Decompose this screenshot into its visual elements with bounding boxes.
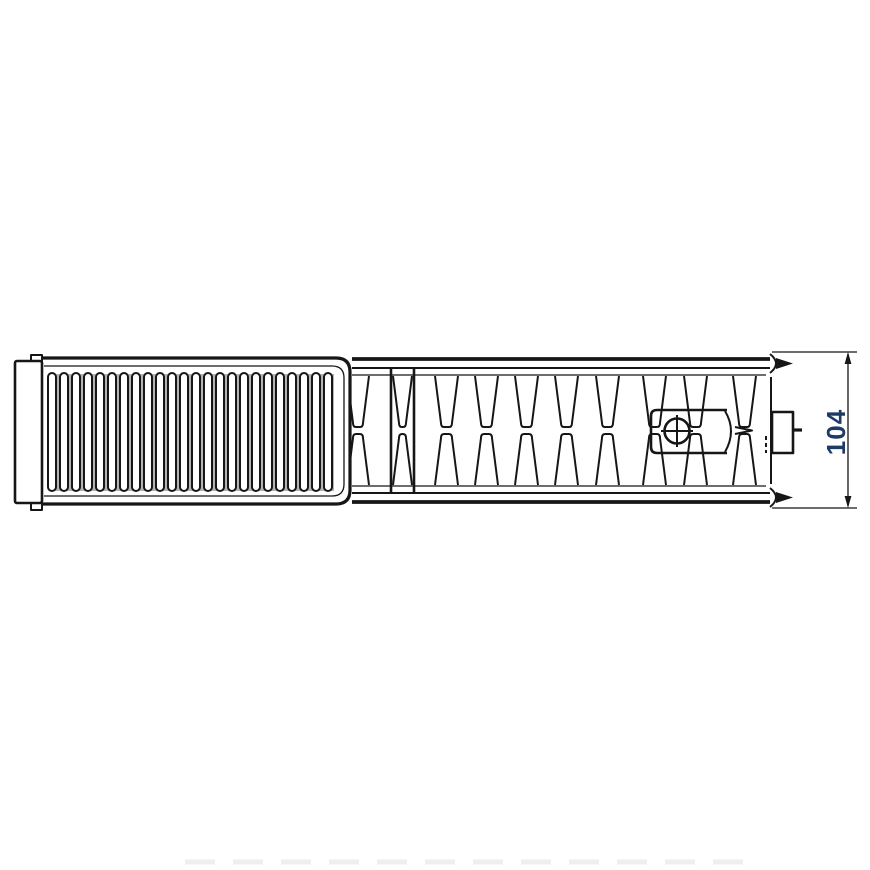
end-cap xyxy=(15,361,42,503)
convector-channel xyxy=(596,376,619,427)
convector-channel xyxy=(515,434,538,485)
grille-fin xyxy=(96,373,104,491)
convector-channel xyxy=(435,434,458,485)
grille-fin xyxy=(216,373,224,491)
grille-fin xyxy=(324,373,332,491)
convector-channels xyxy=(347,376,756,485)
convector-channel xyxy=(393,376,412,427)
grille-fin xyxy=(84,373,92,491)
convector-channel xyxy=(643,434,666,485)
grille-fin xyxy=(204,373,212,491)
arrow-up-icon xyxy=(845,352,852,364)
convector-channel xyxy=(684,434,707,485)
convector-channel xyxy=(393,434,412,485)
grille-fin xyxy=(120,373,128,491)
dimension-label: 104 xyxy=(821,409,851,455)
valve-cross-icon xyxy=(661,415,693,447)
grille-fin xyxy=(156,373,164,491)
grille-fin xyxy=(72,373,80,491)
grille-fin xyxy=(264,373,272,491)
connection-block xyxy=(772,412,793,453)
valve-spindle-tip xyxy=(735,427,752,434)
grille-fin xyxy=(276,373,284,491)
convector-channel xyxy=(733,434,756,485)
arrow-down-icon xyxy=(845,496,852,508)
grille-fin xyxy=(108,373,116,491)
rear-top-end-tip xyxy=(776,358,793,369)
convector-channel xyxy=(515,376,538,427)
rear-bottom-end-tip xyxy=(776,492,793,503)
grille-fin xyxy=(300,373,308,491)
dimension-annotation: 104 xyxy=(772,352,857,508)
convector-channel xyxy=(733,376,756,427)
grille-fin xyxy=(228,373,236,491)
convector-channel xyxy=(555,376,578,427)
convector-channel xyxy=(475,434,498,485)
grille-fin xyxy=(168,373,176,491)
convector-channel xyxy=(555,434,578,485)
rear-top-end-arc xyxy=(770,354,776,373)
valve-end-arc xyxy=(725,411,731,452)
front-panel-grille xyxy=(15,355,350,510)
diagram-canvas: 104 xyxy=(0,0,870,870)
grille-fin xyxy=(48,373,56,491)
rear-bottom-end-arc xyxy=(770,488,776,507)
grille-fin xyxy=(240,373,248,491)
convector-channel xyxy=(684,376,707,427)
convector-channel xyxy=(596,434,619,485)
grille-fin xyxy=(132,373,140,491)
grille-fin xyxy=(252,373,260,491)
rear-panel xyxy=(347,354,802,507)
grille-fin xyxy=(312,373,320,491)
grille-fin xyxy=(144,373,152,491)
radiator-technical-drawing: 104 xyxy=(0,0,870,870)
convector-channel xyxy=(435,376,458,427)
grille-fin xyxy=(288,373,296,491)
grille-fin xyxy=(180,373,188,491)
grille-fin xyxy=(192,373,200,491)
grille-fin xyxy=(60,373,68,491)
convector-channel xyxy=(475,376,498,427)
convector-channel xyxy=(643,376,666,427)
